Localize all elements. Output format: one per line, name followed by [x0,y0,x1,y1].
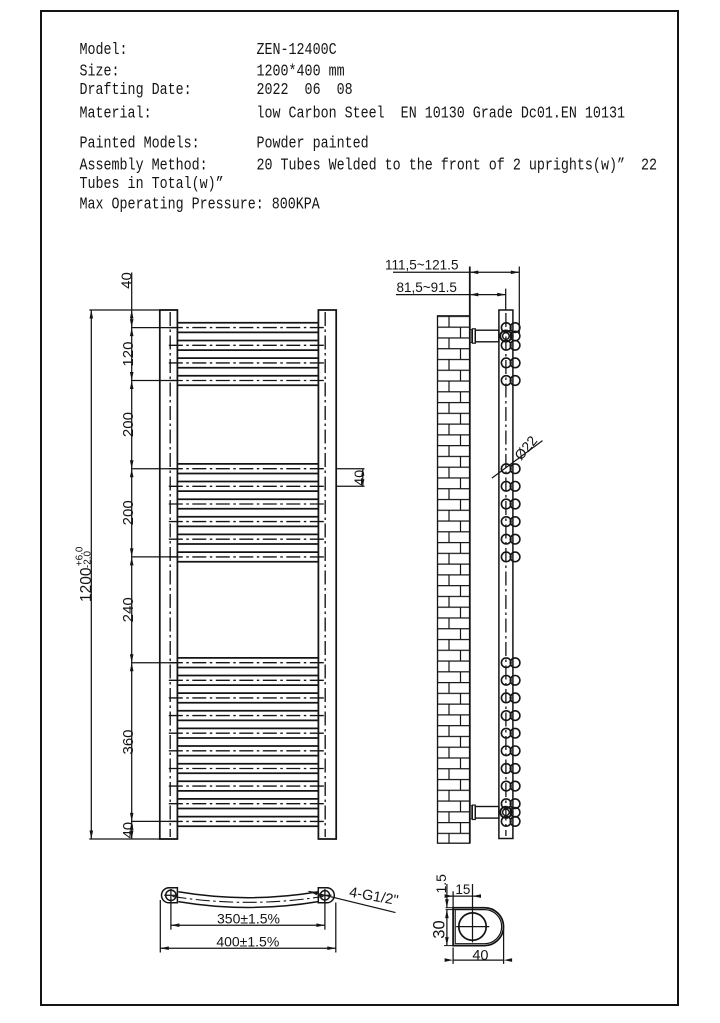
svg-text:81,5~91.5: 81,5~91.5 [397,280,457,295]
svg-text:-2.0: -2.0 [83,550,94,568]
svg-text:Painted Models:: Painted Models: [80,133,200,153]
svg-text:Model:: Model: [80,40,128,60]
svg-text:30: 30 [430,920,448,938]
svg-text:400±1.5%: 400±1.5% [216,933,279,949]
svg-text:40: 40 [472,948,488,964]
svg-text:200: 200 [120,500,137,525]
svg-text:1.5: 1.5 [433,874,449,894]
svg-text:1200: 1200 [78,567,95,602]
svg-text:40: 40 [119,272,136,289]
svg-text:350±1.5%: 350±1.5% [217,911,280,927]
svg-text:1200*400 mm: 1200*400 mm [257,61,345,81]
svg-text:Material:: Material: [80,103,152,123]
svg-text:360: 360 [120,729,137,754]
svg-text:Tubes in Total(w)”: Tubes in Total(w)” [80,174,224,194]
svg-text:111,5~121.5: 111,5~121.5 [385,257,458,272]
svg-text:Max Operating Pressure: 800KPA: Max Operating Pressure: 800KPA [80,194,321,214]
svg-text:Assembly Method:: Assembly Method: [80,155,208,175]
svg-text:200: 200 [120,412,137,437]
svg-text:Drafting Date:: Drafting Date: [80,80,192,100]
svg-text:20 Tubes Welded to the front o: 20 Tubes Welded to the front of 2 uprigh… [257,155,658,175]
svg-text:Powder painted: Powder painted [257,133,369,153]
svg-text:15: 15 [455,882,470,897]
svg-text:240: 240 [120,597,137,622]
svg-text:40: 40 [352,470,368,486]
svg-text:low Carbon Steel EN 10130 Gra: low Carbon Steel EN 10130 Grade Dc01.EN … [257,103,625,123]
svg-text:40: 40 [120,822,137,839]
svg-text:Size:: Size: [80,61,120,81]
svg-text:ZEN-12400C: ZEN-12400C [257,40,337,60]
svg-text:120: 120 [120,342,137,367]
svg-text:2022 06 08: 2022 06 08 [257,80,353,100]
